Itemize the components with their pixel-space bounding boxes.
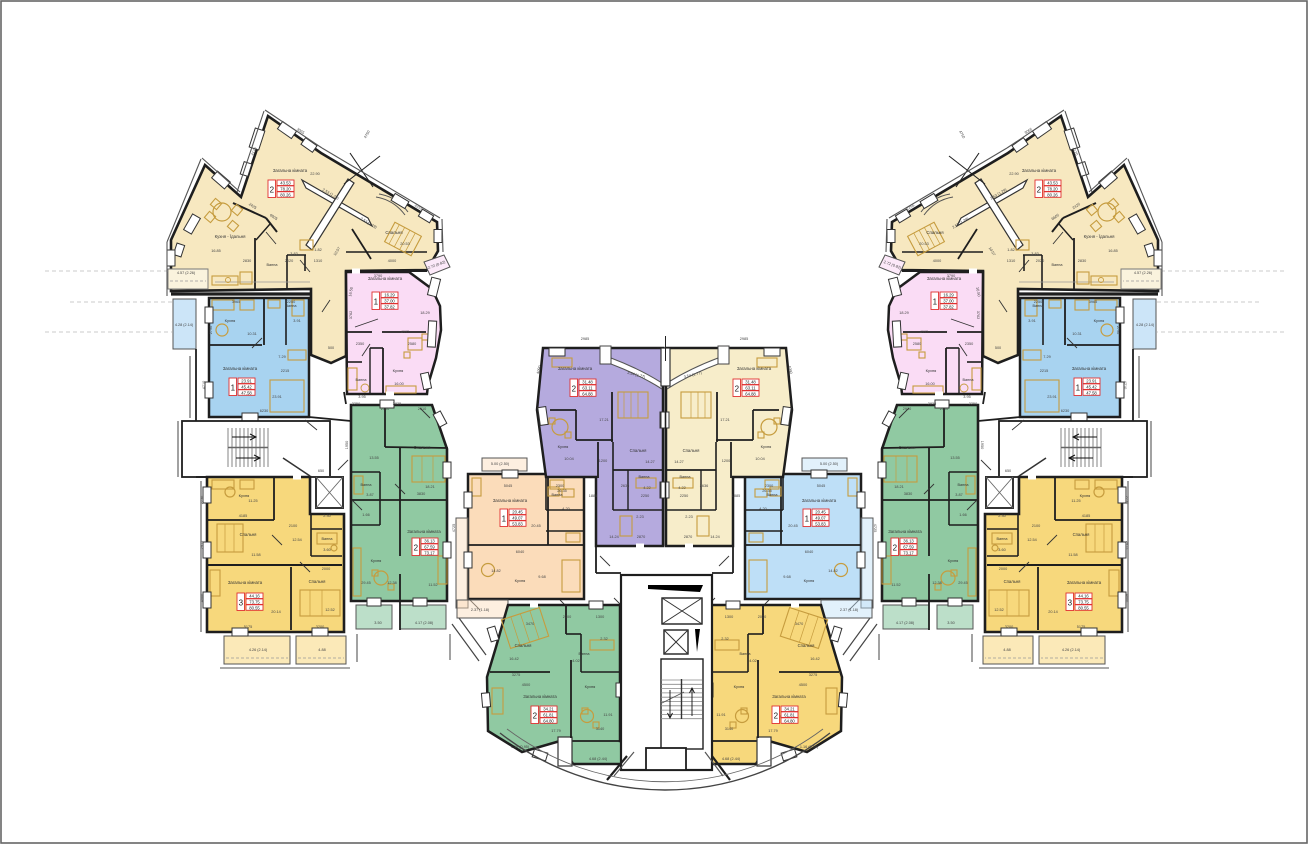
svg-text:Ванна: Ванна — [963, 378, 975, 382]
svg-text:18.29: 18.29 — [899, 311, 909, 315]
svg-text:1: 1 — [374, 297, 379, 306]
svg-text:2870: 2870 — [684, 535, 692, 539]
svg-text:4725: 4725 — [452, 524, 456, 532]
svg-text:3965: 3965 — [232, 300, 240, 304]
svg-text:3275: 3275 — [809, 673, 817, 677]
svg-text:2835: 2835 — [928, 402, 936, 406]
svg-text:10.31: 10.31 — [1072, 332, 1082, 336]
svg-text:31.48: 31.48 — [745, 380, 756, 385]
svg-text:Кухня: Кухня — [734, 684, 745, 689]
svg-text:Ванна: Ванна — [680, 475, 692, 479]
svg-text:4066: 4066 — [1125, 594, 1129, 602]
svg-text:1310: 1310 — [314, 259, 322, 263]
svg-text:2580: 2580 — [913, 342, 921, 346]
svg-text:5045: 5045 — [504, 484, 512, 488]
svg-text:2000: 2000 — [999, 567, 1007, 571]
svg-text:73.75: 73.75 — [1078, 599, 1089, 604]
svg-text:16.85: 16.85 — [1108, 249, 1118, 253]
svg-text:Ванна: Ванна — [997, 537, 1009, 541]
svg-text:23.91: 23.91 — [241, 379, 252, 384]
svg-text:37.82: 37.82 — [943, 304, 954, 309]
svg-text:13.55: 13.55 — [369, 456, 379, 460]
svg-text:2985: 2985 — [740, 337, 748, 341]
svg-text:2736: 2736 — [200, 496, 204, 504]
svg-text:4.57 (2.26): 4.57 (2.26) — [177, 271, 196, 275]
svg-text:1.66: 1.66 — [362, 513, 369, 517]
svg-text:11.52: 11.52 — [428, 583, 437, 587]
svg-text:73.17: 73.17 — [903, 550, 914, 555]
svg-text:3762: 3762 — [976, 311, 980, 319]
svg-text:80.55: 80.55 — [1078, 605, 1089, 610]
svg-text:43.53: 43.53 — [1047, 181, 1058, 186]
svg-text:2250: 2250 — [641, 494, 649, 498]
svg-text:2350: 2350 — [965, 342, 973, 346]
svg-text:1: 1 — [933, 297, 938, 306]
svg-text:5.00 (2.50): 5.00 (2.50) — [491, 462, 510, 466]
svg-text:Загальна кімната: Загальна кімната — [802, 498, 837, 503]
svg-text:1950: 1950 — [980, 441, 984, 449]
svg-text:2: 2 — [735, 384, 740, 393]
svg-text:12.38: 12.38 — [387, 581, 397, 585]
svg-text:53.83: 53.83 — [815, 521, 826, 526]
svg-text:43.53: 43.53 — [280, 181, 291, 186]
svg-text:3.91: 3.91 — [293, 319, 300, 323]
svg-text:3470: 3470 — [795, 622, 803, 626]
svg-text:Ванна: Ванна — [958, 483, 970, 487]
svg-text:1.82: 1.82 — [314, 248, 321, 252]
svg-text:Загальна кімната: Загальна кімната — [223, 366, 258, 371]
svg-text:4.20: 4.20 — [562, 507, 569, 511]
svg-text:4725: 4725 — [873, 524, 877, 532]
svg-text:4.68 (2.44): 4.68 (2.44) — [589, 757, 608, 761]
svg-text:7.29: 7.29 — [278, 355, 285, 359]
svg-text:3200: 3200 — [316, 625, 324, 629]
svg-text:Кухня: Кухня — [225, 318, 236, 323]
svg-text:2910: 2910 — [418, 407, 426, 411]
svg-text:3275: 3275 — [512, 673, 520, 677]
svg-text:2250: 2250 — [352, 402, 360, 406]
svg-text:4.88: 4.88 — [318, 648, 325, 652]
svg-text:Спальня: Спальня — [899, 445, 916, 450]
svg-text:3.91: 3.91 — [1028, 319, 1035, 323]
svg-text:Загальна кімната: Загальна кімната — [1072, 366, 1107, 371]
svg-text:16.00: 16.00 — [925, 382, 935, 386]
svg-text:3: 3 — [239, 598, 244, 607]
svg-text:3965: 3965 — [1089, 300, 1097, 304]
svg-text:11.52: 11.52 — [891, 583, 900, 587]
svg-text:67.59: 67.59 — [903, 544, 914, 549]
svg-text:Кухня: Кухня — [804, 578, 815, 583]
svg-text:3: 3 — [1068, 598, 1073, 607]
svg-text:10.31: 10.31 — [247, 332, 257, 336]
svg-text:3.87: 3.87 — [366, 493, 373, 497]
svg-text:4500: 4500 — [522, 683, 530, 687]
svg-text:4.02: 4.02 — [572, 659, 579, 663]
svg-text:2250: 2250 — [680, 494, 688, 498]
svg-text:1200: 1200 — [599, 459, 607, 463]
svg-text:Загальна кімната: Загальна кімната — [1067, 580, 1102, 585]
svg-text:4066: 4066 — [200, 594, 204, 602]
svg-text:Ванна: Ванна — [267, 263, 279, 267]
svg-text:44.16: 44.16 — [249, 594, 260, 599]
svg-text:9.68: 9.68 — [538, 575, 545, 579]
svg-text:1: 1 — [502, 514, 507, 523]
svg-text:11.91: 11.91 — [716, 713, 725, 717]
svg-text:Ванна: Ванна — [767, 493, 779, 497]
svg-text:2636: 2636 — [621, 484, 629, 488]
svg-text:3790: 3790 — [374, 274, 382, 278]
svg-text:31.48: 31.48 — [582, 380, 593, 385]
svg-text:2.23: 2.23 — [685, 515, 692, 519]
svg-text:5175: 5175 — [1077, 625, 1085, 629]
svg-text:2736: 2736 — [1125, 496, 1129, 504]
svg-text:Ванна: Ванна — [740, 652, 752, 656]
svg-text:36.13: 36.13 — [424, 539, 435, 544]
svg-text:5045: 5045 — [817, 484, 825, 488]
svg-text:Спальня: Спальня — [309, 579, 326, 584]
svg-text:2250: 2250 — [969, 402, 977, 406]
svg-text:1.82: 1.82 — [1007, 248, 1014, 252]
svg-text:9.68: 9.68 — [783, 575, 790, 579]
svg-text:Кухня: Кухня — [239, 493, 250, 498]
svg-text:16.42: 16.42 — [509, 657, 519, 661]
svg-text:2910: 2910 — [903, 407, 911, 411]
svg-text:20.14: 20.14 — [1048, 610, 1058, 614]
svg-text:73.17: 73.17 — [424, 550, 435, 555]
svg-text:12.54: 12.54 — [292, 538, 302, 542]
svg-text:Загальна кімната: Загальна кімната — [228, 580, 263, 585]
svg-text:20.45: 20.45 — [815, 510, 826, 515]
svg-text:2: 2 — [533, 711, 538, 720]
svg-text:2835: 2835 — [393, 402, 401, 406]
svg-text:Загальна кімната: Загальна кімната — [927, 276, 962, 281]
svg-text:4.57 (2.26): 4.57 (2.26) — [1134, 271, 1153, 275]
svg-text:2000: 2000 — [758, 615, 766, 619]
svg-text:Кухня - Їдальня: Кухня - Їдальня — [215, 234, 247, 239]
svg-text:2580: 2580 — [408, 342, 416, 346]
svg-text:Загальна кімната: Загальна кімната — [772, 694, 806, 699]
svg-text:80.55: 80.55 — [249, 605, 260, 610]
svg-text:20.45: 20.45 — [788, 524, 798, 528]
svg-text:Кухня: Кухня — [926, 368, 937, 373]
svg-text:2.30: 2.30 — [998, 514, 1005, 518]
svg-text:Спальня: Спальня — [414, 445, 431, 450]
svg-text:3830: 3830 — [417, 492, 425, 496]
svg-text:4.88: 4.88 — [1003, 648, 1010, 652]
svg-text:18.21: 18.21 — [894, 485, 904, 489]
svg-text:Спальня: Спальня — [926, 230, 944, 235]
svg-text:Загальна кімната: Загальна кімната — [493, 498, 528, 503]
svg-text:Кухня - Їдальня: Кухня - Їдальня — [1084, 234, 1116, 239]
svg-text:22.90: 22.90 — [1009, 172, 1019, 176]
svg-text:2215: 2215 — [1040, 369, 1048, 373]
svg-text:4995: 4995 — [920, 330, 928, 334]
svg-text:4.02: 4.02 — [749, 659, 756, 663]
svg-text:2: 2 — [893, 543, 898, 552]
svg-text:6040: 6040 — [805, 550, 813, 554]
svg-text:3140: 3140 — [725, 727, 733, 731]
svg-text:4.68 (2.44): 4.68 (2.44) — [722, 757, 741, 761]
svg-text:4995: 4995 — [401, 330, 409, 334]
svg-text:3.87: 3.87 — [955, 493, 962, 497]
svg-text:36.13: 36.13 — [903, 539, 914, 544]
svg-text:2000: 2000 — [322, 567, 330, 571]
svg-text:Спальня: Спальня — [630, 448, 647, 453]
svg-text:650: 650 — [318, 469, 324, 473]
svg-text:2100: 2100 — [1032, 524, 1040, 528]
svg-text:2: 2 — [414, 543, 419, 552]
svg-text:2915: 2915 — [1125, 541, 1129, 549]
svg-text:4.26 (2.14): 4.26 (2.14) — [1062, 648, 1081, 652]
svg-text:26.35: 26.35 — [557, 489, 567, 493]
svg-text:Ванна: Ванна — [322, 537, 334, 541]
svg-text:64.80: 64.80 — [784, 718, 795, 723]
svg-text:2350: 2350 — [356, 342, 364, 346]
svg-text:4710: 4710 — [1123, 381, 1127, 389]
svg-text:12.54: 12.54 — [1027, 538, 1037, 542]
svg-text:16.42: 16.42 — [810, 657, 820, 661]
svg-text:3200: 3200 — [1005, 625, 1013, 629]
svg-text:4.26 (2.14): 4.26 (2.14) — [249, 648, 268, 652]
svg-text:2.37 (1.18): 2.37 (1.18) — [840, 608, 859, 612]
svg-text:73.75: 73.75 — [249, 599, 260, 604]
svg-text:17.21: 17.21 — [720, 418, 730, 422]
svg-text:2215: 2215 — [281, 369, 289, 373]
svg-text:18.29: 18.29 — [420, 311, 430, 315]
svg-text:11.58: 11.58 — [1068, 553, 1077, 557]
svg-text:1200: 1200 — [722, 459, 730, 463]
svg-text:80.26: 80.26 — [1047, 192, 1058, 197]
svg-text:6230: 6230 — [1061, 409, 1069, 413]
svg-text:Спальня: Спальня — [683, 448, 700, 453]
svg-text:2.23: 2.23 — [636, 515, 643, 519]
svg-text:Спальня: Спальня — [798, 643, 815, 648]
svg-text:23.91: 23.91 — [1086, 379, 1097, 384]
svg-text:Ванна: Ванна — [361, 483, 373, 487]
svg-text:23.91: 23.91 — [272, 395, 282, 399]
svg-text:Кухня: Кухня — [393, 368, 404, 373]
svg-text:29.45: 29.45 — [958, 581, 968, 585]
svg-text:Загальна кімната: Загальна кімната — [1022, 168, 1057, 173]
svg-text:Спальня: Спальня — [1073, 532, 1090, 537]
svg-text:20.53: 20.53 — [919, 242, 929, 246]
svg-text:Кухня: Кухня — [515, 578, 526, 583]
svg-text:37.00: 37.00 — [943, 298, 954, 303]
svg-text:2.32: 2.32 — [600, 637, 607, 641]
svg-text:11.91: 11.91 — [603, 713, 612, 717]
svg-text:3.60: 3.60 — [323, 548, 330, 552]
svg-text:2020: 2020 — [1036, 259, 1044, 263]
svg-text:47.58: 47.58 — [1086, 390, 1097, 395]
svg-text:2000: 2000 — [563, 615, 571, 619]
svg-text:14.27: 14.27 — [674, 460, 684, 464]
svg-text:45.42: 45.42 — [241, 384, 252, 389]
svg-text:2985: 2985 — [581, 337, 589, 341]
svg-text:2870: 2870 — [637, 535, 645, 539]
svg-text:11.58: 11.58 — [251, 553, 260, 557]
svg-text:Загальна кімната: Загальна кімната — [737, 366, 772, 371]
svg-text:Ванна: Ванна — [1052, 263, 1064, 267]
svg-text:20.45: 20.45 — [531, 524, 541, 528]
svg-text:5175: 5175 — [244, 625, 252, 629]
svg-text:Ванна: Ванна — [579, 652, 591, 656]
svg-text:1.16 (0.95): 1.16 (0.95) — [800, 745, 819, 749]
svg-text:12.52: 12.52 — [994, 608, 1004, 612]
svg-text:2250: 2250 — [1034, 300, 1042, 304]
svg-text:Загальна кімната: Загальна кімната — [407, 529, 441, 534]
svg-text:16.00: 16.00 — [394, 382, 404, 386]
svg-text:12.52: 12.52 — [325, 608, 335, 612]
svg-text:4500: 4500 — [799, 683, 807, 687]
svg-text:3.50: 3.50 — [374, 621, 381, 625]
svg-text:61.81: 61.81 — [784, 712, 795, 717]
svg-text:2830: 2830 — [243, 259, 251, 263]
svg-text:47.58: 47.58 — [241, 390, 252, 395]
svg-text:4.22: 4.22 — [643, 486, 650, 490]
svg-text:10.04: 10.04 — [755, 457, 765, 461]
svg-text:3.83: 3.83 — [1031, 252, 1038, 256]
svg-text:16.85: 16.85 — [211, 249, 221, 253]
svg-text:2300: 2300 — [556, 484, 564, 488]
svg-text:4.28 (2.14): 4.28 (2.14) — [175, 323, 194, 327]
svg-text:3.95: 3.95 — [963, 395, 970, 399]
svg-text:2830: 2830 — [1078, 259, 1086, 263]
svg-text:45.42: 45.42 — [1086, 384, 1097, 389]
svg-text:6040: 6040 — [516, 550, 524, 554]
svg-text:61.81: 61.81 — [543, 712, 554, 717]
svg-text:1: 1 — [805, 514, 810, 523]
svg-text:2796: 2796 — [209, 326, 213, 334]
svg-text:1310: 1310 — [1007, 259, 1015, 263]
svg-text:Ванна: Ванна — [1033, 304, 1045, 308]
svg-text:500: 500 — [995, 346, 1001, 350]
svg-text:4.20: 4.20 — [759, 507, 766, 511]
svg-text:10.04: 10.04 — [564, 457, 574, 461]
svg-text:12.38: 12.38 — [932, 581, 942, 585]
svg-text:2636: 2636 — [700, 484, 708, 488]
svg-text:11.25: 11.25 — [248, 499, 257, 503]
svg-text:44.16: 44.16 — [1078, 594, 1089, 599]
svg-text:23.91: 23.91 — [1047, 395, 1057, 399]
svg-text:Загальна кімната: Загальна кімната — [523, 694, 557, 699]
svg-text:Загальна кімната: Загальна кімната — [273, 168, 308, 173]
svg-text:2100: 2100 — [940, 407, 948, 411]
svg-text:64.88: 64.88 — [582, 391, 593, 396]
svg-text:3762: 3762 — [349, 311, 353, 319]
svg-text:1885: 1885 — [589, 494, 597, 498]
svg-text:20.45: 20.45 — [512, 510, 523, 515]
svg-text:1.16 (0.95): 1.16 (0.95) — [511, 745, 530, 749]
svg-text:Спальня: Спальня — [515, 643, 532, 648]
svg-text:49.07: 49.07 — [815, 515, 826, 520]
svg-text:63.11: 63.11 — [582, 385, 593, 390]
svg-text:Загальна кімната: Загальна кімната — [888, 529, 922, 534]
svg-text:4185: 4185 — [1082, 514, 1090, 518]
svg-text:2: 2 — [774, 711, 779, 720]
svg-text:Спальня: Спальня — [385, 230, 403, 235]
svg-text:Спальня: Спальня — [240, 532, 257, 537]
svg-text:2100: 2100 — [289, 524, 297, 528]
svg-text:Загальна кімната: Загальна кімната — [558, 366, 593, 371]
svg-text:Ванна: Ванна — [286, 304, 298, 308]
svg-text:5.00 (2.50): 5.00 (2.50) — [820, 462, 839, 466]
svg-text:2.30: 2.30 — [323, 514, 330, 518]
svg-text:17.21: 17.21 — [599, 418, 609, 422]
svg-text:37.00: 37.00 — [384, 298, 395, 303]
svg-text:Кухня: Кухня — [761, 444, 772, 449]
svg-text:Кухня: Кухня — [948, 558, 959, 563]
svg-text:3.60: 3.60 — [998, 548, 1005, 552]
svg-text:4000: 4000 — [933, 259, 941, 263]
svg-text:3140: 3140 — [596, 727, 604, 731]
svg-text:1.66: 1.66 — [959, 513, 966, 517]
svg-text:29.45: 29.45 — [361, 581, 371, 585]
svg-text:78.20: 78.20 — [1047, 186, 1058, 191]
svg-text:3830: 3830 — [904, 492, 912, 496]
svg-text:4710: 4710 — [202, 381, 206, 389]
svg-text:Ванна: Ванна — [356, 378, 368, 382]
svg-text:14.24: 14.24 — [609, 535, 619, 539]
svg-text:11.25: 11.25 — [1071, 499, 1080, 503]
svg-text:53.83: 53.83 — [512, 521, 523, 526]
svg-text:3.95: 3.95 — [358, 395, 365, 399]
svg-text:650: 650 — [1005, 469, 1011, 473]
svg-text:14.82: 14.82 — [491, 569, 501, 573]
svg-text:Ванна: Ванна — [552, 493, 564, 497]
svg-text:14.27: 14.27 — [645, 460, 655, 464]
svg-text:Спальня: Спальня — [1004, 579, 1021, 584]
svg-text:2250: 2250 — [287, 300, 295, 304]
svg-text:500: 500 — [328, 346, 334, 350]
svg-text:2: 2 — [270, 185, 275, 194]
svg-text:37.82: 37.82 — [384, 304, 395, 309]
svg-text:1950: 1950 — [345, 441, 349, 449]
svg-text:4.28 (2.14): 4.28 (2.14) — [1136, 323, 1155, 327]
svg-text:14.24: 14.24 — [710, 535, 720, 539]
svg-text:4.17 (2.08): 4.17 (2.08) — [896, 621, 915, 625]
svg-text:1: 1 — [1076, 383, 1081, 392]
svg-text:4.22: 4.22 — [678, 486, 685, 490]
svg-text:78.20: 78.20 — [280, 186, 291, 191]
svg-text:4.17 (2.08): 4.17 (2.08) — [415, 621, 434, 625]
svg-text:16.29: 16.29 — [384, 293, 395, 298]
svg-text:Кухня: Кухня — [558, 444, 569, 449]
svg-text:14.82: 14.82 — [828, 569, 838, 573]
svg-text:67.59: 67.59 — [424, 544, 435, 549]
svg-text:64.88: 64.88 — [745, 391, 756, 396]
svg-text:Кухня: Кухня — [1080, 493, 1091, 498]
svg-text:3470: 3470 — [526, 622, 534, 626]
svg-text:20.14: 20.14 — [271, 610, 281, 614]
svg-text:34.21: 34.21 — [784, 707, 795, 712]
svg-text:1885: 1885 — [732, 494, 740, 498]
svg-text:17.79: 17.79 — [551, 729, 561, 733]
svg-text:63.11: 63.11 — [745, 385, 756, 390]
svg-text:3790: 3790 — [947, 274, 955, 278]
svg-text:Ванна: Ванна — [639, 475, 651, 479]
svg-text:20.53: 20.53 — [400, 242, 410, 246]
svg-text:2: 2 — [572, 384, 577, 393]
svg-text:4000: 4000 — [388, 259, 396, 263]
svg-text:2020: 2020 — [285, 259, 293, 263]
svg-text:2100: 2100 — [381, 407, 389, 411]
svg-text:1300: 1300 — [596, 615, 604, 619]
svg-text:Кухня: Кухня — [1094, 318, 1105, 323]
svg-text:Кухня: Кухня — [371, 558, 382, 563]
svg-text:7.29: 7.29 — [1043, 355, 1050, 359]
svg-text:3.50: 3.50 — [947, 621, 954, 625]
svg-text:2.37 (1.18): 2.37 (1.18) — [471, 608, 490, 612]
